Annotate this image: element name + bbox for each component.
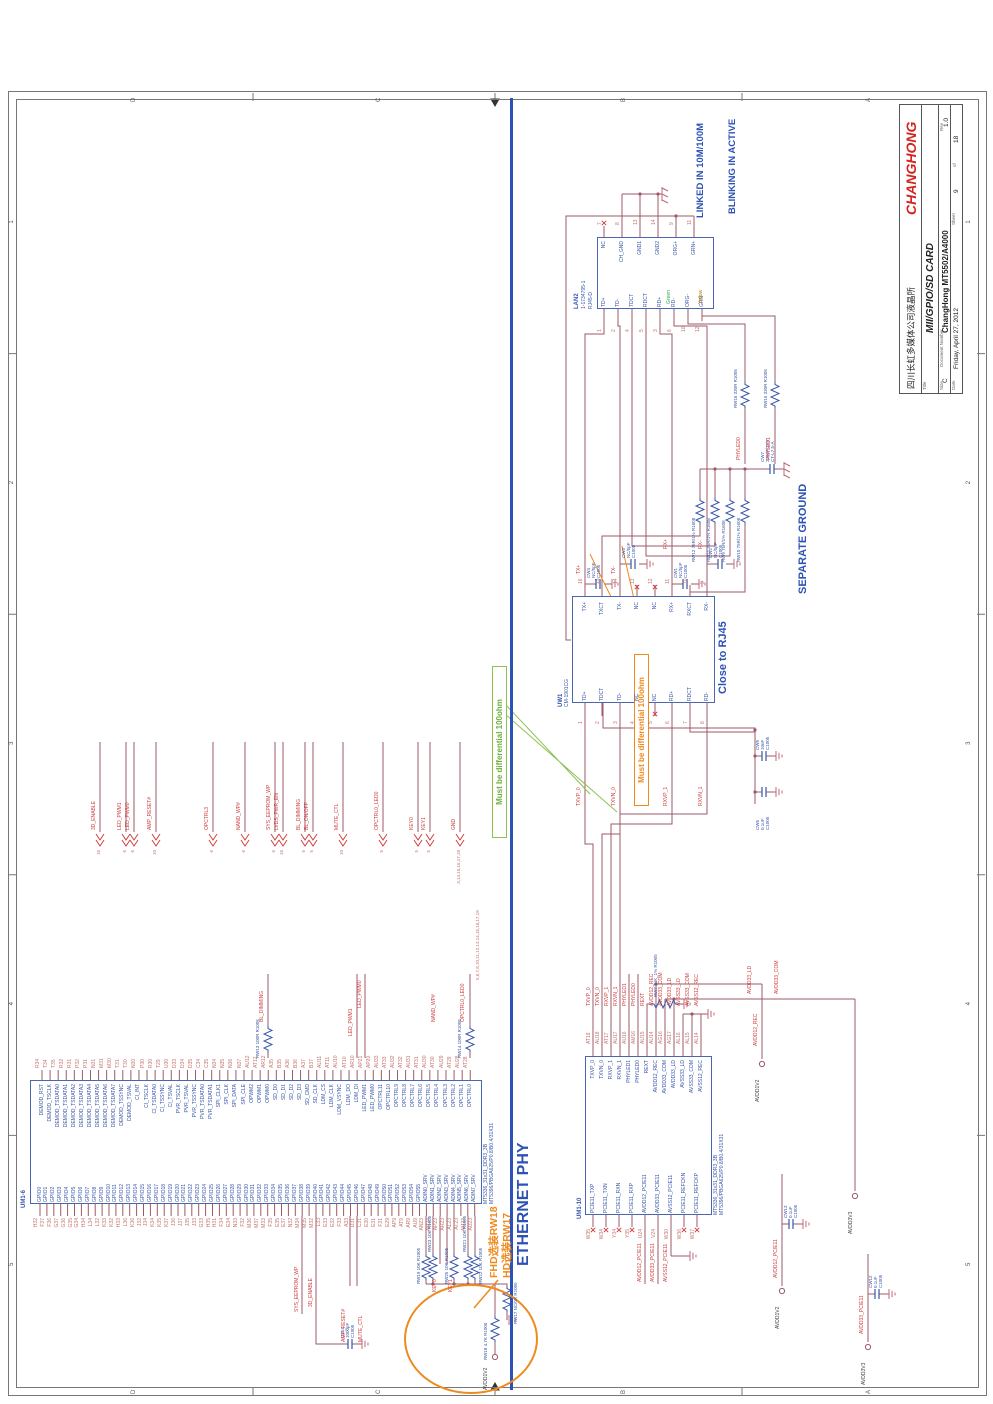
pin-number: 15 bbox=[596, 578, 601, 584]
pin-number: 6 bbox=[668, 329, 673, 332]
pin-number: AT31 bbox=[415, 1056, 420, 1068]
pin-number: AU30 bbox=[423, 1055, 428, 1068]
pin-number: H31 bbox=[213, 1218, 218, 1240]
pin-name: AVDD33_PCIE11 bbox=[656, 1174, 661, 1213]
pin-number: B36 bbox=[294, 1059, 299, 1068]
pin-name: LDM_VSYNC bbox=[338, 1084, 343, 1144]
pin-name: OPWM1 bbox=[258, 1084, 263, 1144]
pin-name: GPIO11 bbox=[113, 1184, 118, 1202]
pin-name: GPIO24 bbox=[203, 1184, 208, 1202]
pin-number: M37 bbox=[255, 1218, 260, 1240]
pin-name: AVSS12_REC bbox=[699, 1060, 704, 1120]
offpage-sheet-refs: 5 bbox=[380, 850, 385, 910]
pin-number: AU31 bbox=[407, 1055, 412, 1068]
zone-number: 2 bbox=[9, 481, 15, 484]
pin-name: OPCTRL2 bbox=[452, 1084, 457, 1144]
pin-name: NC bbox=[635, 602, 640, 642]
pin-number: E33 bbox=[324, 1218, 329, 1240]
sheet-label: Sheet bbox=[951, 213, 956, 225]
offpage-sheet-refs: 6 bbox=[242, 850, 247, 910]
led-green-label: Green bbox=[667, 290, 672, 304]
zone-number: 5 bbox=[966, 1263, 972, 1266]
pin-name: CI_TSDATA0 bbox=[153, 1084, 158, 1144]
net-label: TXVN_0 bbox=[612, 787, 617, 806]
net-label: KEY0 bbox=[410, 817, 415, 830]
resistor-label: RW22 10K R1005 bbox=[479, 1248, 484, 1284]
net-label: MUTE_CTL bbox=[359, 1316, 364, 1342]
pin-number: H34 bbox=[82, 1218, 87, 1240]
pin-name: GPIO52 bbox=[396, 1184, 401, 1202]
pin-name: PVR_TSVAL bbox=[185, 1084, 190, 1144]
sheet-number: 9 bbox=[953, 189, 960, 193]
pin-number: AM16 bbox=[632, 1031, 637, 1044]
pin-name: GPIO48 bbox=[369, 1184, 374, 1202]
pin-number: W37 bbox=[691, 1229, 696, 1251]
zone-number: 4 bbox=[9, 1002, 15, 1005]
pin-number: N36 bbox=[229, 1059, 234, 1068]
net-label: AVDD12_PCIE11 bbox=[638, 1243, 643, 1282]
pin-number: AT11 bbox=[326, 1057, 331, 1068]
resistor-label: RW14 100R R1005 bbox=[458, 1019, 463, 1058]
pin-number: K33 bbox=[103, 1218, 108, 1240]
pin-number: G33 bbox=[200, 1218, 205, 1240]
pin-name: PVR_TSDATA1 bbox=[209, 1084, 214, 1144]
pin-number: F34 bbox=[220, 1218, 225, 1240]
pin-number: AL14 bbox=[695, 1032, 700, 1044]
pin-name: LDM_CLK bbox=[330, 1084, 335, 1144]
pin-name: GPIO19 bbox=[169, 1184, 174, 1202]
pin-name: OPCTRL9 bbox=[395, 1084, 400, 1144]
pin-name: RD- bbox=[705, 692, 710, 701]
resistor-label: RW18 4.7K R1005 bbox=[484, 1323, 489, 1360]
pin-name: RXCT bbox=[688, 602, 693, 642]
pin-number: F35 bbox=[269, 1218, 274, 1240]
pin-name: GPIO10 bbox=[107, 1184, 112, 1202]
pin-number: U30 bbox=[165, 1059, 170, 1068]
pin-name: REXT bbox=[645, 1060, 650, 1120]
pin-number: AT28 bbox=[464, 1056, 469, 1068]
pin-number: 11 bbox=[666, 579, 671, 584]
pin-number: AU11 bbox=[318, 1056, 323, 1068]
capacitor-pkg: C1005 bbox=[719, 545, 724, 558]
pin-number: AR12 bbox=[262, 1055, 267, 1068]
pin-name: GPIO15 bbox=[141, 1184, 146, 1202]
pin-name: GPIO50 bbox=[383, 1184, 388, 1202]
pin-number: 16 bbox=[579, 578, 584, 584]
pin-number: L36 bbox=[124, 1218, 129, 1240]
pin-name: OPCTRL5 bbox=[427, 1084, 432, 1144]
capacitor-pkg: C1005 bbox=[632, 545, 637, 558]
led-yellow-label: Yellow bbox=[699, 290, 704, 304]
pin-name: DEMOD_TSDATA5 bbox=[96, 1084, 101, 1144]
net-label: AVDD33_COM bbox=[659, 972, 664, 1006]
note-differential-green: Must be differential 100ohm bbox=[492, 666, 507, 838]
pin-name: SPI_CLE bbox=[242, 1084, 247, 1144]
net-label: AVSS33_LD bbox=[677, 978, 682, 1006]
pin-name: CI_TSSYNC bbox=[161, 1084, 166, 1144]
size-value: C bbox=[942, 378, 949, 383]
pin-name: GPIO12 bbox=[120, 1184, 125, 1202]
pin-number: 7 bbox=[598, 222, 603, 225]
pin-number: J35 bbox=[186, 1218, 191, 1240]
pin-name: DEMOD_TSCLK bbox=[48, 1084, 53, 1144]
pin-number: AL15 bbox=[686, 1032, 691, 1044]
pin-name: GPIO38 bbox=[300, 1184, 305, 1202]
net-label: AMP_RESET# bbox=[342, 1309, 347, 1342]
net-label: AVSS12_REC bbox=[695, 974, 700, 1006]
pin-number: 4 bbox=[626, 329, 631, 332]
pin-number: E30 bbox=[365, 1218, 370, 1240]
pin-name: GPIO53 bbox=[403, 1184, 408, 1202]
pin-name: ADIN3_SRV bbox=[445, 1174, 450, 1202]
pin-name: OPCTRL6 bbox=[419, 1084, 424, 1144]
zone-letter: D bbox=[131, 98, 137, 102]
net-label: LED_PWM0 bbox=[126, 802, 131, 830]
net-label: AVDD12_REC bbox=[754, 1014, 759, 1046]
net-label: OPCTRL0_LED0 bbox=[375, 792, 380, 830]
net-label: LVDS_PWR_EN bbox=[275, 793, 280, 830]
ic-part: MT5396/PBGA625/P0.8/B0.4/31X31 bbox=[490, 1123, 495, 1204]
net-label: AVDD33_PCIE11 bbox=[651, 1243, 656, 1282]
pin-number: AT33 bbox=[383, 1056, 388, 1068]
ic-part: RJ45-D bbox=[589, 292, 594, 309]
pin-name: SD_D2 bbox=[290, 1084, 295, 1144]
pin-number: G35 bbox=[69, 1218, 74, 1240]
ic-ref: UM1-10 bbox=[577, 1198, 583, 1219]
resistor-label: RW19 10K R1005 bbox=[417, 1248, 422, 1284]
resistor-label: RW23 10K R1005 bbox=[428, 1216, 433, 1252]
pin-name: GPIO30 bbox=[245, 1184, 250, 1202]
pin-name: SPI_CLK1 bbox=[217, 1084, 222, 1144]
pin-name: LDM_CS bbox=[322, 1084, 327, 1144]
pin-number: J33 bbox=[193, 1218, 198, 1240]
pin-name: TD+ bbox=[602, 297, 607, 307]
pin-number: K32 bbox=[110, 1218, 115, 1240]
pin-name: ADIN4_SRV bbox=[452, 1174, 457, 1202]
pin-name: GPIO55 bbox=[417, 1184, 422, 1202]
net-label: AVDD33_COM bbox=[775, 960, 780, 994]
net-label: BL_DIMMING bbox=[297, 799, 302, 830]
pin-name: NC bbox=[653, 602, 658, 642]
pin-name: GPIO32 bbox=[258, 1184, 263, 1202]
date-label: Date bbox=[951, 380, 956, 390]
net-label: AVDD12_PCIE11 bbox=[774, 1239, 779, 1278]
offpage-sheet-refs: 5 bbox=[427, 850, 432, 910]
pin-name: GPIO41 bbox=[320, 1184, 325, 1202]
pin-number: E31 bbox=[372, 1218, 377, 1240]
net-label: RX- bbox=[699, 540, 704, 549]
pin-number: M33 bbox=[262, 1218, 267, 1240]
pin-name: NC bbox=[653, 694, 658, 701]
pin-number: 12 bbox=[649, 578, 654, 584]
pin-number: AR9 bbox=[407, 1218, 412, 1240]
net-label: PHYLED0 bbox=[737, 437, 742, 460]
pin-number: AP9 bbox=[393, 1218, 398, 1240]
resistor-label: RW7 24K_1% R1005 bbox=[654, 954, 659, 997]
pin-number: AT29 bbox=[448, 1056, 453, 1068]
pin-name: GPIO34 bbox=[272, 1184, 277, 1202]
pin-name: GPIO36 bbox=[286, 1184, 291, 1202]
pin-number: T34 bbox=[44, 1059, 49, 1068]
offpage-sheet-refs: 6 bbox=[210, 850, 215, 910]
pin-number: AU23 bbox=[469, 1218, 474, 1240]
pin-number: AR23 bbox=[441, 1218, 446, 1240]
sheet-of-label: of bbox=[952, 163, 957, 167]
net-label: RX+ bbox=[664, 539, 669, 549]
resistor-label: RW13 100R R1005 bbox=[256, 1019, 261, 1058]
pin-name: OPCTRL3 bbox=[444, 1084, 449, 1144]
pin-number: B35 bbox=[278, 1059, 283, 1068]
pin-name: OPCTRL10 bbox=[387, 1084, 392, 1144]
brand-logo: CHANGHONG bbox=[903, 122, 919, 215]
pin-number: D34 bbox=[181, 1059, 186, 1068]
zone-letter: C bbox=[376, 98, 382, 102]
net-label: AVDD33_PCIE11 bbox=[860, 1295, 865, 1334]
ic-ref: UM1-6 bbox=[21, 1190, 27, 1208]
net-label: NAND_WP# bbox=[237, 802, 242, 830]
note-linked: LINKED IN 10M/100M bbox=[695, 123, 706, 218]
pin-name: GPIO3 bbox=[58, 1187, 63, 1202]
pin-number: E29 bbox=[386, 1218, 391, 1240]
pin-name: GPIO26 bbox=[217, 1184, 222, 1202]
pin-number: P30 bbox=[141, 1059, 146, 1068]
pin-name: RDCT bbox=[644, 293, 649, 307]
pin-name: GPIO0 bbox=[38, 1187, 43, 1202]
pin-name: GPIO17 bbox=[155, 1184, 160, 1202]
pin-number: F31 bbox=[379, 1218, 384, 1240]
pin-name: TXVP_0 bbox=[591, 1060, 596, 1120]
offpage-sheet-refs: 6 bbox=[131, 850, 136, 910]
pin-name: AVDD12_REC bbox=[654, 1060, 659, 1120]
pin-name: GPIO25 bbox=[210, 1184, 215, 1202]
pin-number: AT32 bbox=[399, 1056, 404, 1068]
pin-name: ORG- bbox=[686, 294, 691, 307]
pin-number: E34 bbox=[227, 1218, 232, 1240]
pin-number: J34 bbox=[144, 1218, 149, 1240]
pin-number: AU17 bbox=[614, 1031, 619, 1044]
capacitor-pkg: C1005 bbox=[766, 737, 771, 750]
pin-number: AG17 bbox=[668, 1031, 673, 1044]
pin-number: AU29 bbox=[440, 1055, 445, 1068]
pin-number: Y35 bbox=[626, 1229, 631, 1251]
pin-name: GPIO54 bbox=[410, 1184, 415, 1202]
net-label: AVDD33_LD bbox=[668, 978, 673, 1006]
pin-name: GND2 bbox=[656, 241, 661, 276]
pin-name: SD_D3 bbox=[298, 1084, 303, 1144]
net-label: SYS_EEPROM_WP bbox=[267, 785, 272, 830]
offpage-sheet-refs: 10 bbox=[340, 850, 345, 910]
pin-name: ORG+ bbox=[674, 241, 679, 276]
net-label: RXVP_1 bbox=[605, 987, 610, 1006]
pin-number: B37 bbox=[310, 1059, 315, 1068]
pin-name: GRN+ bbox=[692, 241, 697, 276]
net-label: RXVP_1 bbox=[664, 787, 669, 806]
pin-number: AU16 bbox=[623, 1031, 628, 1044]
pin-number: 6 bbox=[666, 721, 671, 724]
pin-number: R31 bbox=[68, 1059, 73, 1068]
net-label: OPCTRL0_LED0 bbox=[461, 984, 466, 1022]
pin-name: DEMOD_TSSYNC bbox=[120, 1084, 125, 1144]
power-rail-label: AVDD3V3 bbox=[862, 1363, 867, 1385]
pin-number: K37 bbox=[165, 1218, 170, 1240]
pin-name: GPIO5 bbox=[72, 1187, 77, 1202]
offpage-sheet-refs: 5 bbox=[310, 850, 315, 910]
pin-name: RX+ bbox=[670, 602, 675, 642]
pin-number: L34 bbox=[89, 1218, 94, 1240]
net-label: 3D_ENABLE bbox=[92, 801, 97, 830]
resistor-label: RW21 10K R1005 bbox=[463, 1216, 468, 1252]
pin-number: C35 bbox=[205, 1059, 210, 1068]
pin-name: GPIO40 bbox=[314, 1184, 319, 1202]
pin-name: GPIO51 bbox=[389, 1184, 394, 1202]
pin-number: M32 bbox=[310, 1218, 315, 1240]
pin-number: AU33 bbox=[375, 1055, 380, 1068]
offpage-sheet-refs: 6 bbox=[272, 850, 277, 910]
pin-name: DEMOD_TSDATA3 bbox=[80, 1084, 85, 1144]
pin-number: AT10 bbox=[343, 1056, 348, 1068]
offpage-sheet-refs: 6 bbox=[123, 850, 128, 910]
pin-number: E35 bbox=[276, 1218, 281, 1240]
pin-number: AT30 bbox=[431, 1056, 436, 1068]
net-label: MUTE_CTL bbox=[335, 804, 340, 830]
pin-name: AVDD33_COM bbox=[663, 1060, 668, 1120]
pin-name: CI_TSVAL bbox=[169, 1084, 174, 1144]
pin-name: GPIO31 bbox=[251, 1184, 256, 1202]
zone-number: 2 bbox=[966, 481, 972, 484]
pin-number: AU10 bbox=[334, 1055, 339, 1068]
offpage-sheet-refs: 10 bbox=[153, 850, 158, 910]
pin-number: G37 bbox=[55, 1218, 60, 1240]
ic-part: MT5396/PBGA625/P0.8/B0.4/31X31 bbox=[720, 1134, 725, 1215]
pin-name: SD_D0 bbox=[274, 1084, 279, 1144]
net-label: AVSS33_COM bbox=[686, 973, 691, 1006]
pin-name: OPWM0 bbox=[266, 1084, 271, 1144]
power-rail-label: AVDD1V2 bbox=[776, 1307, 781, 1329]
pin-name: GPIO43 bbox=[334, 1184, 339, 1202]
date-value: Friday, April 27, 2012 bbox=[953, 308, 960, 369]
pin-name: GPIO16 bbox=[148, 1184, 153, 1202]
pin-number: AR10 bbox=[351, 1055, 356, 1068]
pin-number: C31 bbox=[358, 1218, 363, 1240]
pin-number: N35 bbox=[221, 1059, 226, 1068]
zone-number: 5 bbox=[9, 1263, 15, 1266]
offpage-sheet-refs: 5 bbox=[415, 850, 420, 910]
pin-number: J32 bbox=[138, 1218, 143, 1240]
pin-number: AU32 bbox=[391, 1055, 396, 1068]
pin-name: OPWM2 bbox=[250, 1084, 255, 1144]
pin-number: F32 bbox=[241, 1218, 246, 1240]
net-label: KEY1 bbox=[449, 1279, 454, 1292]
note-fit-option-2: HD选装RW17 bbox=[499, 1213, 514, 1278]
pin-number: T31 bbox=[116, 1059, 121, 1068]
net-label: PHYLED1 bbox=[623, 983, 628, 1006]
pin-number: N33 bbox=[234, 1218, 239, 1240]
schematic-canvas: ETHERNET PHY Must be differential 100ohm… bbox=[0, 0, 993, 1404]
capacitor-pkg: C1005 bbox=[351, 1325, 356, 1338]
pin-number: H35 bbox=[207, 1218, 212, 1240]
resistor-label: RW17 NC/0R R1005 bbox=[514, 1282, 519, 1324]
doc-number: ChangHong MT5502/A4000 bbox=[941, 230, 950, 333]
pin-number: M36 bbox=[248, 1218, 253, 1240]
offpage-sheet-refs: 16 bbox=[97, 850, 102, 910]
pin-name: GPIO27 bbox=[224, 1184, 229, 1202]
pin-name: GPIO28 bbox=[231, 1184, 236, 1202]
pin-name: GPIO20 bbox=[176, 1184, 181, 1202]
pin-name: GPIO45 bbox=[348, 1184, 353, 1202]
pin-number: 5 bbox=[640, 329, 645, 332]
pin-name: DEMOD_TSDATA1 bbox=[64, 1084, 69, 1144]
pin-number: L32 bbox=[96, 1218, 101, 1240]
pin-number: R32 bbox=[60, 1059, 65, 1068]
pin-number: T29 bbox=[157, 1059, 162, 1068]
zone-number: 3 bbox=[9, 741, 15, 744]
pin-number: G36 bbox=[62, 1218, 67, 1240]
pin-name: RD+ bbox=[670, 691, 675, 701]
sheet-total: 18 bbox=[953, 136, 960, 143]
pin-name: RD- bbox=[672, 298, 677, 307]
pin-number: R34 bbox=[36, 1059, 41, 1068]
pin-name: DEMOD_TSVAL bbox=[128, 1084, 133, 1144]
pin-name: AVSS33_COM bbox=[690, 1060, 695, 1120]
pin-number: AT9 bbox=[400, 1218, 405, 1240]
pin-name: SPI_CLK bbox=[225, 1084, 230, 1144]
pin-name: GPIO14 bbox=[134, 1184, 139, 1202]
capacitor-pkg: C1005 bbox=[794, 1205, 799, 1218]
note-blinking: BLINKING IN ACTIVE bbox=[727, 119, 738, 214]
pin-name: PCIE11_REFCKP bbox=[695, 1173, 700, 1213]
pin-number: M34 bbox=[296, 1218, 301, 1240]
offpage-sheet-refs: 16 bbox=[280, 850, 285, 910]
net-label: AVDD33_LD bbox=[748, 966, 753, 994]
pin-name: TD- bbox=[616, 299, 621, 307]
pin-number: D33 bbox=[173, 1059, 178, 1068]
pin-number: F37 bbox=[41, 1218, 46, 1240]
pin-name: GND1 bbox=[638, 241, 643, 276]
pin-name: TDCT bbox=[600, 688, 605, 701]
pin-number: T35 bbox=[52, 1059, 57, 1068]
pin-name: GPIO22 bbox=[189, 1184, 194, 1202]
power-rail-label: AVDD1V2 bbox=[484, 1368, 489, 1390]
pin-number: F33 bbox=[338, 1218, 343, 1240]
pin-name: GPIO39 bbox=[307, 1184, 312, 1202]
pin-name: PVR_TSSYNC bbox=[193, 1084, 198, 1144]
net-label: PHYLED0 bbox=[632, 983, 637, 1006]
pin-name: ADIN5_SRV bbox=[458, 1174, 463, 1202]
pin-name: AVDD12_PCIE11 bbox=[643, 1174, 648, 1213]
net-label: RXVN_1 bbox=[699, 787, 704, 806]
net-label: TXVP_0 bbox=[587, 987, 592, 1006]
pin-name: GPIO8 bbox=[93, 1187, 98, 1202]
pin-name: GPIO29 bbox=[238, 1184, 243, 1202]
rev-value: 1.0 bbox=[943, 118, 950, 127]
pin-name: RXVP_1 bbox=[609, 1060, 614, 1120]
pin-name: TX- bbox=[618, 602, 623, 642]
net-label: TXVN_0 bbox=[596, 987, 601, 1006]
pin-name: NC bbox=[602, 241, 607, 276]
pin-name: GPIO13 bbox=[127, 1184, 132, 1202]
net-label: AMP_RESET# bbox=[148, 797, 153, 830]
pin-name: RDCT bbox=[688, 687, 693, 701]
pin-name: TXCT bbox=[600, 602, 605, 642]
pin-number: K34 bbox=[151, 1218, 156, 1240]
pin-number: P31 bbox=[84, 1059, 89, 1068]
pin-number: AU14 bbox=[650, 1031, 655, 1044]
pin-name: AVSS12_PCIE11 bbox=[669, 1175, 674, 1213]
pin-number: W34 bbox=[600, 1229, 605, 1251]
pin-name: GPIO37 bbox=[293, 1184, 298, 1202]
sheet-title: MII/GPIO/SD CARD bbox=[925, 243, 936, 333]
zone-number: 4 bbox=[966, 1002, 972, 1005]
